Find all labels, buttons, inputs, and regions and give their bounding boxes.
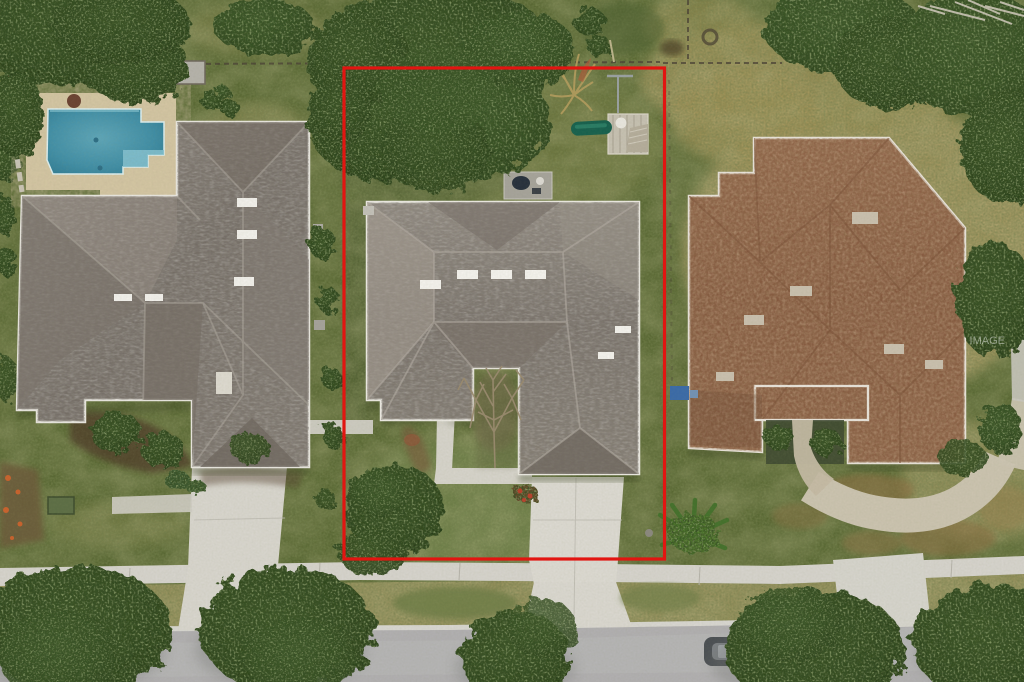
svg-text:IMAGE: IMAGE: [970, 335, 1005, 347]
